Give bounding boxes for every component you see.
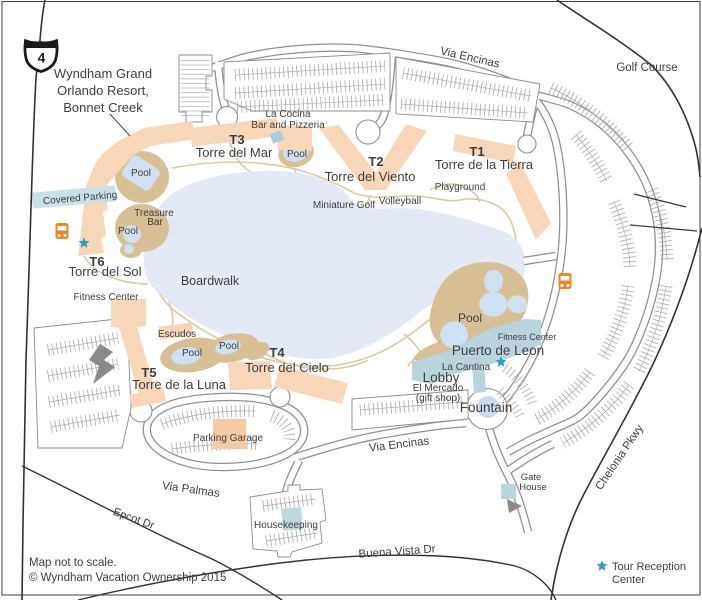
svg-text:Torre del Sol: Torre del Sol xyxy=(69,264,142,279)
svg-text:Bar: Bar xyxy=(147,217,163,228)
svg-text:Bonnet Creek: Bonnet Creek xyxy=(63,100,143,115)
svg-text:Housekeeping: Housekeeping xyxy=(254,520,318,531)
svg-text:Torre de la Tierra: Torre de la Tierra xyxy=(435,157,534,172)
svg-text:Orlando Resort,: Orlando Resort, xyxy=(57,83,149,98)
svg-text:Volleyball: Volleyball xyxy=(379,196,421,207)
svg-text:4: 4 xyxy=(38,50,46,66)
svg-text:© Wyndham Vacation Ownership 2: © Wyndham Vacation Ownership 2015 xyxy=(29,572,226,584)
svg-text:Escudos: Escudos xyxy=(158,329,196,340)
svg-text:Pool: Pool xyxy=(219,341,239,352)
svg-text:Pool: Pool xyxy=(118,226,138,237)
svg-text:House: House xyxy=(519,482,546,493)
svg-text:Playground: Playground xyxy=(435,182,486,193)
svg-text:Fitness Center: Fitness Center xyxy=(73,292,139,303)
svg-text:T2: T2 xyxy=(368,154,383,169)
svg-text:Puerto de Leon: Puerto de Leon xyxy=(452,343,544,358)
svg-text:Torre del Viento: Torre del Viento xyxy=(325,169,416,184)
svg-text:Pool: Pool xyxy=(287,149,307,160)
svg-text:Golf Course: Golf Course xyxy=(616,62,677,74)
svg-text:Parking Garage: Parking Garage xyxy=(193,433,263,444)
svg-text:Tour Reception: Tour Reception xyxy=(612,561,686,573)
svg-text:Torre del Mar: Torre del Mar xyxy=(196,145,273,160)
svg-text:(gift shop): (gift shop) xyxy=(416,393,460,404)
svg-text:Torre del Cielo: Torre del Cielo xyxy=(245,360,329,375)
svg-text:T4: T4 xyxy=(269,345,285,360)
svg-text:Boardwalk: Boardwalk xyxy=(181,274,240,288)
svg-text:Center: Center xyxy=(612,574,645,586)
svg-text:Pool: Pool xyxy=(131,168,151,179)
svg-text:Map not to scale.: Map not to scale. xyxy=(29,557,117,569)
svg-text:Bar and Pizzeria: Bar and Pizzeria xyxy=(251,120,325,131)
svg-text:Fountain: Fountain xyxy=(460,400,513,415)
svg-text:Fitness Center: Fitness Center xyxy=(498,332,557,342)
svg-text:La Cocina: La Cocina xyxy=(265,109,310,120)
svg-text:Pool: Pool xyxy=(458,311,482,325)
svg-text:Wyndham Grand: Wyndham Grand xyxy=(54,66,152,81)
svg-text:Miniature Golf: Miniature Golf xyxy=(313,200,375,211)
svg-text:Pool: Pool xyxy=(182,348,202,359)
svg-text:Torre de la Luna: Torre de la Luna xyxy=(132,377,227,392)
